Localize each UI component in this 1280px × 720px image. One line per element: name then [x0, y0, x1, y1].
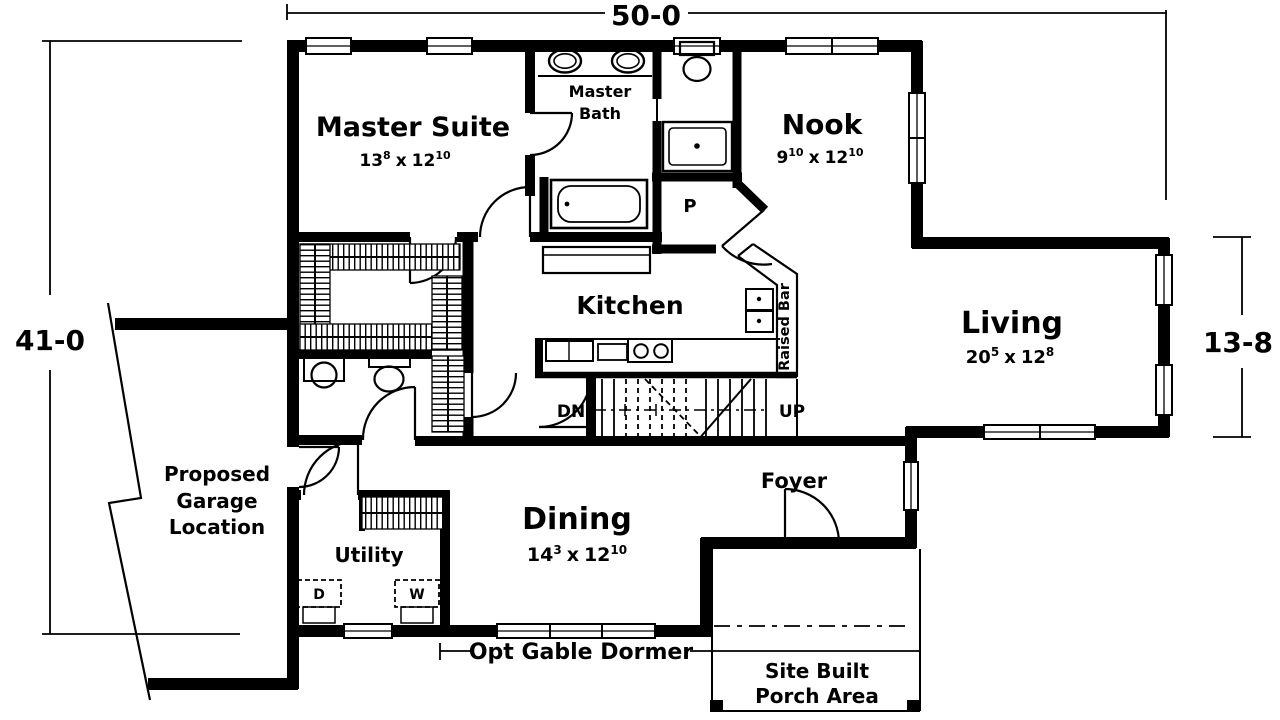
room-label-foyer: Foyer	[761, 469, 828, 493]
window-living-bottom	[984, 425, 1095, 439]
room-label-utility: Utility	[335, 543, 404, 567]
room-label-nook: Nook	[782, 108, 864, 141]
room-label-master-bath-1: Master	[569, 82, 632, 101]
dim-top-label: 50-0	[611, 0, 681, 32]
window-nook-right	[909, 93, 925, 183]
background	[0, 0, 1280, 720]
dormer-label: Opt Gable Dormer	[469, 640, 693, 665]
room-label-master-bath-2: Bath	[579, 104, 621, 123]
dryer-label: D	[313, 587, 325, 603]
room-label-dining: Dining	[522, 502, 632, 537]
garage-label-2: Garage	[176, 489, 257, 513]
window-living-right-1	[1156, 255, 1172, 305]
porch-post-right	[907, 700, 920, 712]
porch-post-left	[710, 700, 723, 712]
window-dining	[497, 624, 655, 638]
garage-label-1: Proposed	[164, 462, 270, 486]
room-label-master-suite: Master Suite	[316, 112, 510, 143]
window-foyer-right	[904, 462, 918, 510]
window-master-1	[306, 38, 351, 54]
room-label-kitchen: Kitchen	[576, 291, 683, 320]
dim-right-label: 13-8	[1203, 326, 1273, 359]
room-label-living: Living	[961, 306, 1063, 341]
window-nook-top	[786, 38, 878, 54]
window-living-right-2	[1156, 365, 1172, 415]
stair-up-label: UP	[779, 402, 805, 422]
dim-left-label: 41-0	[15, 324, 85, 357]
washer-label: W	[409, 587, 424, 603]
window-utility	[344, 624, 392, 638]
stair-down-label: DN	[557, 402, 585, 422]
window-master-2	[427, 38, 472, 54]
raised-bar-label: Raised Bar	[777, 282, 793, 371]
utility-closet	[362, 497, 443, 529]
garage-label-3: Location	[169, 515, 265, 539]
linen-closet	[432, 356, 464, 432]
floor-plan-canvas: 50-0 41-0 13-8 Master Suite 138x1210 Mas…	[0, 0, 1280, 720]
pantry-label: P	[683, 196, 696, 217]
porch-label-1: Site Built	[765, 659, 870, 683]
porch-label-2: Porch Area	[755, 684, 879, 708]
room-dims-living: 205x128	[966, 345, 1054, 368]
